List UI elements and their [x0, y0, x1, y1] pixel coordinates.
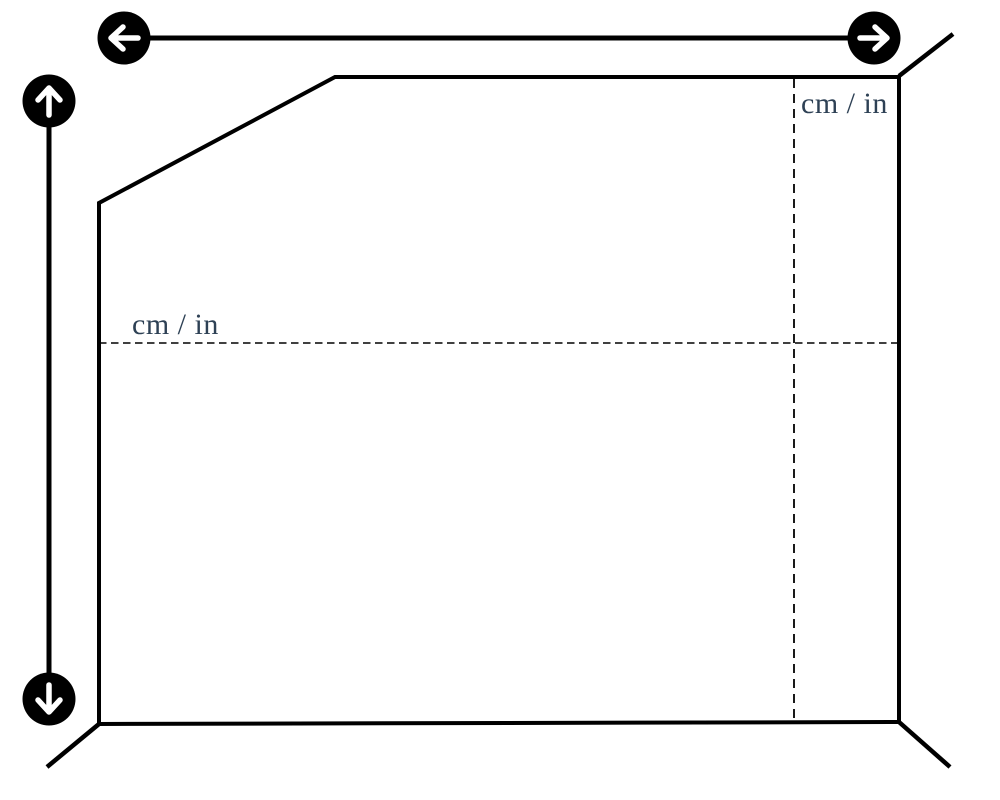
corner-tick-top-right	[899, 34, 953, 76]
width-increase-button[interactable]	[848, 12, 901, 65]
size-editor: cm / in cm / in	[0, 0, 1000, 800]
corner-tick-bottom-right	[899, 722, 950, 767]
vertical-guide-unit-label[interactable]: cm / in	[801, 87, 888, 120]
height-decrease-button[interactable]	[23, 673, 76, 726]
width-decrease-button[interactable]	[98, 12, 151, 65]
horizontal-guide-unit-label[interactable]: cm / in	[132, 308, 219, 341]
panel-outline	[99, 77, 899, 724]
corner-tick-bottom-left	[47, 724, 99, 767]
height-increase-button[interactable]	[23, 75, 76, 128]
size-editor-canvas: cm / in cm / in	[0, 0, 1000, 800]
